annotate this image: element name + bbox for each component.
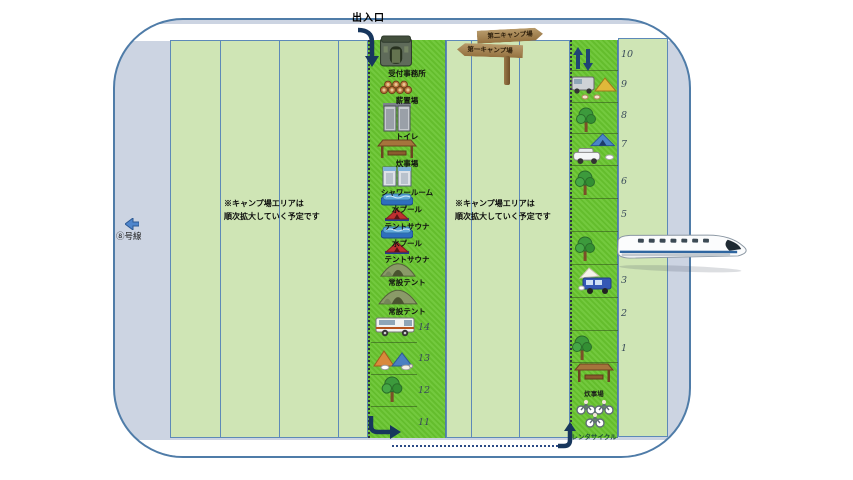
left-field-panels [170,40,368,438]
bottom-road [115,440,689,456]
tree-icon [576,107,596,133]
site-number-11: 11 [418,417,430,428]
facility-label-sauna-1: テントサウナ [368,221,446,232]
note-line: ※キャンプ場エリアは [224,197,320,210]
facility-label-firewood: 薪置場 [368,95,446,106]
note-line: ※キャンプ場エリアは [455,197,551,210]
shinkansen-train-icon [611,225,751,276]
site-number-2: 2 [621,308,627,319]
tree-icon [575,170,595,196]
tree-icon [572,335,592,361]
kitchen-shelter-icon [377,139,417,159]
facility-label-shower: シャワールーム [368,187,446,198]
tents-with-dogs-icon [373,345,417,370]
route-8-label: ⑧号線 [116,230,142,242]
facility-label-tent-2: 常設テント [368,306,446,317]
expansion-note-left: ※キャンプ場エリアは 順次拡大していく予定です [224,197,320,223]
signpost-first-camp: 第一キャンプ場 [457,43,523,58]
site-number-8: 8 [621,110,627,121]
site-number-13: 13 [418,353,430,364]
right-field-panels [446,40,570,438]
facility-label-tent-1: 常設テント [368,277,446,288]
van-icon [578,266,614,296]
panel-divider [471,41,472,437]
site-number-12: 12 [418,385,430,396]
site-divider [371,374,417,375]
two-way-arrows-icon [572,45,594,73]
site-number-5: 5 [621,209,627,220]
facility-label-pool-1: 水プール [368,204,446,215]
site-divider [570,231,618,232]
panel-divider [279,41,280,437]
site-number-9: 9 [621,79,627,90]
site-divider [570,198,618,199]
kitchen-label-right: 炊事場 [568,388,620,398]
tree-icon [381,376,403,403]
facility-label-pool-2: 水プール [368,238,446,249]
facility-label-kitchen: 炊事場 [368,158,446,169]
site-number-3: 3 [621,275,627,286]
panel-divider [220,41,221,437]
note-line: 順次拡大していく予定です [224,210,320,223]
site-number-6: 6 [621,176,627,187]
note-line: 順次拡大していく予定です [455,210,551,223]
site-divider [570,165,618,166]
tree-icon [575,236,595,262]
facility-label-reception: 受付事務所 [368,68,446,79]
facility-label-toilet: トイレ [368,131,446,142]
campground-map: 出入口 ⑧号線 ※キャンプ場エリアは 順次拡大していく予定です ※キャンプ場エリ… [0,0,853,480]
site-number-1: 1 [621,343,627,354]
reception-building-icon [378,35,414,68]
facility-label-sauna-2: テントサウナ [368,254,446,265]
left-arrow-icon [125,218,139,230]
tent-and-car-icon [571,132,617,165]
camper-and-tent-icon [571,72,617,101]
kitchen-shelter-icon [574,361,614,385]
site-divider [570,297,618,298]
panel-divider [519,41,520,437]
rental-cycle-label: レンタサイクル [568,431,620,441]
entrance-label: 出入口 [352,9,385,24]
site-number-14: 14 [418,322,430,333]
site-divider [570,330,618,331]
bicycles-icon [574,398,616,430]
toilet-icon [383,103,411,132]
signpost-pole [504,56,510,85]
site-divider [371,406,417,407]
firewood-logs-icon [378,80,414,95]
site-number-10: 10 [621,49,633,60]
camper-van-icon [374,315,416,338]
path-dotted-line [392,445,558,447]
site-divider [371,342,417,343]
expansion-note-right: ※キャンプ場エリアは 順次拡大していく予定です [455,197,551,223]
permanent-tent-icon [377,285,419,306]
panel-divider [338,41,339,437]
path-turn-right-arrow-icon [364,414,404,442]
site-number-7: 7 [621,139,627,150]
site-divider [570,102,618,103]
